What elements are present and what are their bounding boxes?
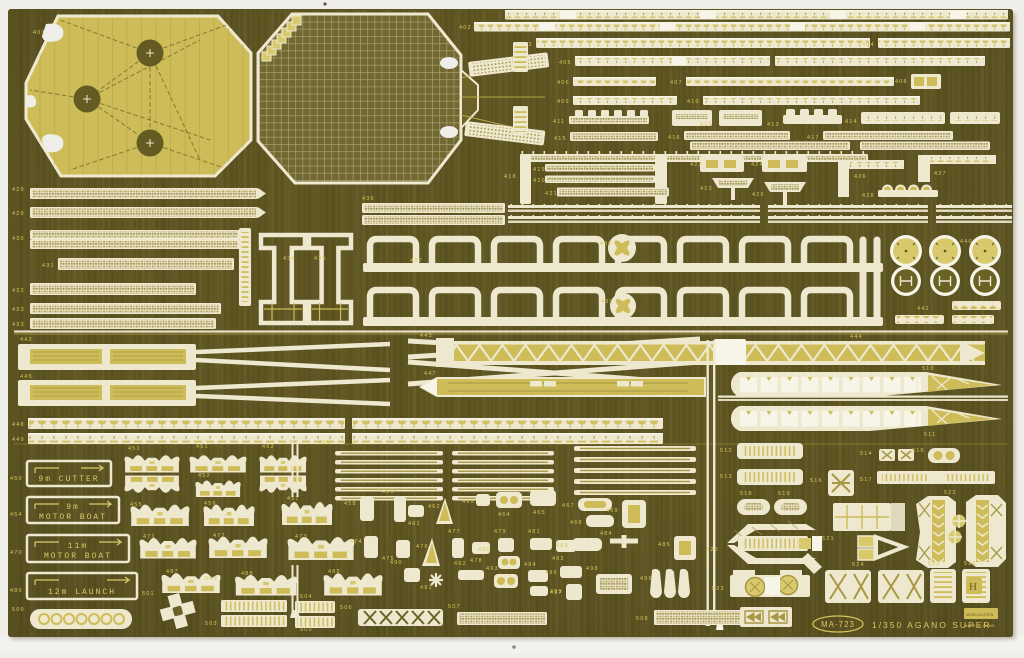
svg-text:506: 506 (340, 605, 353, 611)
svg-text:437: 437 (410, 258, 423, 264)
svg-text:467: 467 (562, 503, 575, 509)
svg-text:421: 421 (545, 191, 558, 197)
svg-text:510: 510 (922, 366, 935, 372)
svg-text:429: 429 (12, 211, 25, 217)
svg-text:12m LAUNCH: 12m LAUNCH (48, 588, 116, 597)
svg-text:433: 433 (12, 322, 25, 328)
svg-text:422: 422 (690, 162, 703, 168)
svg-text:411: 411 (553, 119, 565, 125)
svg-text:456: 456 (204, 501, 217, 507)
svg-text:503: 503 (205, 621, 218, 627)
svg-text:519: 519 (778, 491, 791, 497)
svg-text:523: 523 (712, 586, 725, 592)
svg-text:427: 427 (934, 171, 947, 177)
svg-text:401: 401 (33, 30, 46, 36)
svg-text:426: 426 (854, 174, 867, 180)
svg-text:513: 513 (720, 474, 733, 480)
svg-text:492: 492 (454, 561, 467, 567)
svg-text:444: 444 (850, 334, 863, 340)
svg-text:455: 455 (130, 502, 143, 508)
svg-text:405: 405 (559, 60, 572, 66)
svg-text:438: 438 (600, 241, 613, 247)
svg-text:428: 428 (862, 193, 875, 199)
svg-text:507: 507 (448, 604, 461, 610)
svg-text:MOTOR BOAT: MOTOR BOAT (44, 552, 112, 561)
svg-text:498: 498 (586, 566, 599, 572)
svg-text:453: 453 (318, 440, 331, 446)
svg-text:412: 412 (700, 122, 713, 128)
svg-text:484: 484 (600, 531, 613, 537)
svg-text:452: 452 (262, 444, 275, 450)
svg-text:442: 442 (20, 337, 33, 343)
svg-text:432: 432 (12, 288, 25, 294)
svg-text:451: 451 (128, 446, 141, 452)
svg-text:521: 521 (822, 536, 835, 542)
svg-text:452: 452 (198, 473, 211, 479)
svg-text:514: 514 (860, 451, 873, 457)
svg-text:463: 463 (462, 499, 475, 505)
svg-text:524: 524 (852, 562, 865, 568)
svg-text:500: 500 (12, 607, 25, 613)
svg-text:471: 471 (143, 534, 156, 540)
svg-text:491: 491 (420, 585, 433, 591)
svg-text:429: 429 (12, 187, 25, 193)
svg-text:480: 480 (478, 547, 491, 553)
svg-text:407: 407 (670, 80, 683, 86)
svg-text:414: 414 (845, 119, 858, 125)
svg-text:439: 439 (601, 299, 614, 305)
svg-text:9m: 9m (66, 503, 80, 512)
svg-text:MADE IN JAPAN: MADE IN JAPAN (964, 623, 994, 628)
svg-text:440: 440 (960, 239, 973, 245)
svg-text:434: 434 (283, 256, 296, 262)
svg-text:416: 416 (668, 135, 681, 141)
svg-text:423: 423 (700, 186, 713, 192)
svg-text:465: 465 (533, 510, 546, 516)
svg-text:472: 472 (213, 533, 226, 539)
svg-text:488: 488 (241, 571, 254, 577)
svg-text:473: 473 (295, 534, 308, 540)
svg-text:448: 448 (12, 422, 25, 428)
svg-text:406: 406 (557, 80, 570, 86)
svg-text:477: 477 (448, 529, 461, 535)
svg-text:418: 418 (504, 174, 517, 180)
svg-text:441: 441 (917, 306, 930, 312)
svg-text:522: 522 (944, 490, 957, 496)
svg-text:MOTOR BOAT: MOTOR BOAT (39, 513, 107, 522)
svg-text:517: 517 (860, 477, 873, 483)
svg-text:H: H (969, 581, 977, 593)
svg-text:482: 482 (552, 556, 565, 562)
svg-text:402: 402 (459, 25, 472, 31)
svg-text:512: 512 (720, 448, 733, 454)
svg-text:449: 449 (12, 437, 25, 443)
svg-text:464: 464 (498, 512, 511, 518)
svg-text:483: 483 (556, 543, 569, 549)
svg-text:474: 474 (350, 539, 363, 545)
svg-text:525: 525 (928, 561, 941, 567)
svg-text:515: 515 (912, 448, 925, 454)
svg-text:425: 425 (752, 192, 765, 198)
svg-text:433: 433 (12, 307, 25, 313)
svg-text:489: 489 (328, 569, 341, 575)
svg-text:404: 404 (862, 42, 875, 48)
svg-text:486: 486 (10, 588, 23, 594)
svg-text:415: 415 (554, 136, 567, 142)
svg-text:410: 410 (687, 99, 700, 105)
svg-text:458: 458 (344, 501, 357, 507)
svg-text:503: 503 (205, 576, 218, 582)
svg-text:461: 461 (408, 521, 421, 527)
svg-text:420: 420 (533, 178, 546, 184)
svg-text:508: 508 (636, 616, 649, 622)
svg-text:459: 459 (382, 489, 395, 495)
svg-text:478: 478 (470, 558, 483, 564)
svg-text:445: 445 (20, 374, 33, 380)
svg-text:417: 417 (807, 135, 820, 141)
svg-text:527: 527 (720, 613, 733, 619)
svg-text:462: 462 (428, 504, 441, 510)
svg-text:419: 419 (533, 167, 546, 173)
svg-text:476: 476 (416, 544, 429, 550)
svg-text:424: 424 (751, 162, 764, 168)
svg-text:431: 431 (42, 263, 55, 269)
svg-text:447: 447 (424, 371, 437, 377)
svg-text:497: 497 (550, 590, 563, 596)
svg-text:479: 479 (494, 529, 507, 535)
svg-text:450: 450 (10, 476, 23, 482)
svg-text:408: 408 (895, 79, 908, 85)
svg-text:505: 505 (300, 627, 313, 633)
svg-text:490: 490 (390, 560, 403, 566)
svg-text:MODELKASTEN: MODELKASTEN (966, 613, 994, 617)
svg-text:440: 440 (898, 239, 911, 245)
svg-text:493: 493 (486, 566, 499, 572)
svg-text:487: 487 (166, 569, 179, 575)
svg-text:494: 494 (524, 562, 537, 568)
svg-text:454: 454 (10, 512, 23, 518)
svg-text:469: 469 (606, 508, 619, 514)
svg-text:436: 436 (362, 196, 375, 202)
svg-text:435: 435 (314, 256, 327, 262)
svg-text:443: 443 (420, 333, 433, 339)
svg-text:11m: 11m (68, 542, 88, 551)
svg-text:518: 518 (740, 491, 753, 497)
svg-text:496: 496 (545, 570, 558, 576)
svg-text:526: 526 (964, 561, 977, 567)
svg-text:451: 451 (196, 444, 209, 450)
svg-text:413: 413 (767, 122, 780, 128)
svg-text:9m CUTTER: 9m CUTTER (38, 475, 99, 484)
svg-text:470: 470 (10, 550, 23, 556)
svg-text:468: 468 (570, 520, 583, 526)
svg-text:430: 430 (12, 236, 25, 242)
svg-text:409: 409 (557, 99, 570, 105)
svg-text:481: 481 (528, 529, 541, 535)
svg-text:501: 501 (142, 591, 155, 597)
svg-text:MA-723: MA-723 (821, 620, 855, 629)
svg-text:511: 511 (924, 432, 936, 438)
svg-text:516: 516 (810, 478, 823, 484)
svg-text:485: 485 (658, 542, 671, 548)
svg-text:504: 504 (300, 594, 313, 600)
svg-text:520: 520 (706, 547, 719, 553)
svg-text:499: 499 (640, 576, 653, 582)
